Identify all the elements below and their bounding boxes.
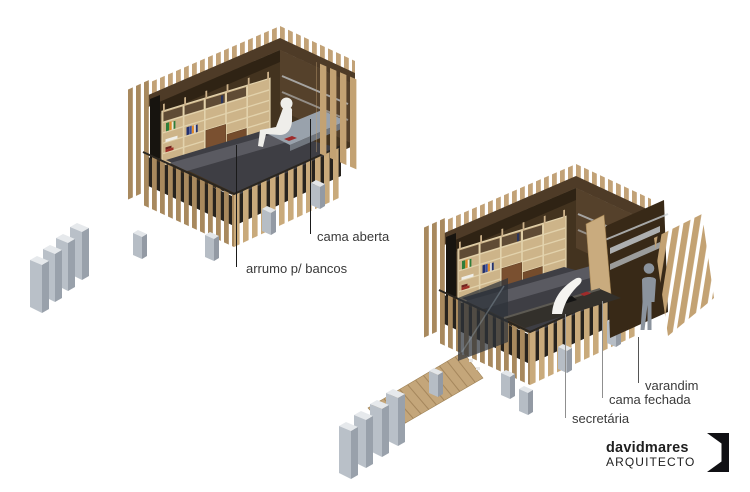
architectural-render: [0, 0, 750, 492]
logo-subtitle-text: ARQUITECTO: [606, 456, 695, 470]
annotation-varandim: varandim: [645, 379, 698, 392]
scene2-closed-module: [339, 164, 714, 479]
annotation-arrumo: arrumo p/ bancos: [246, 262, 347, 275]
logo-brand-text: davidmares: [606, 441, 695, 456]
architect-logo: davidmares ARQUITECTO: [606, 441, 695, 470]
entry-steps: [339, 389, 405, 479]
right-slat-screen: [316, 62, 358, 170]
annotation-cama-fechada: cama fechada: [609, 393, 691, 406]
leader-line-varandim: [638, 337, 639, 383]
annotation-cama-aberta: cama aberta: [317, 230, 389, 243]
scene1-open-module: [127, 26, 358, 261]
leader-line-secretaria: [565, 314, 566, 418]
leader-line-cama-aberta: [310, 119, 311, 234]
leader-line-cama-fechada: [602, 301, 603, 398]
concrete-block-group: [30, 223, 89, 313]
logo-bracket-icon: [707, 433, 729, 472]
presentation-board: arrumo p/ bancos cama aberta secretária …: [0, 0, 750, 492]
annotation-secretaria: secretária: [572, 412, 629, 425]
leader-line-arrumo: [236, 145, 237, 267]
